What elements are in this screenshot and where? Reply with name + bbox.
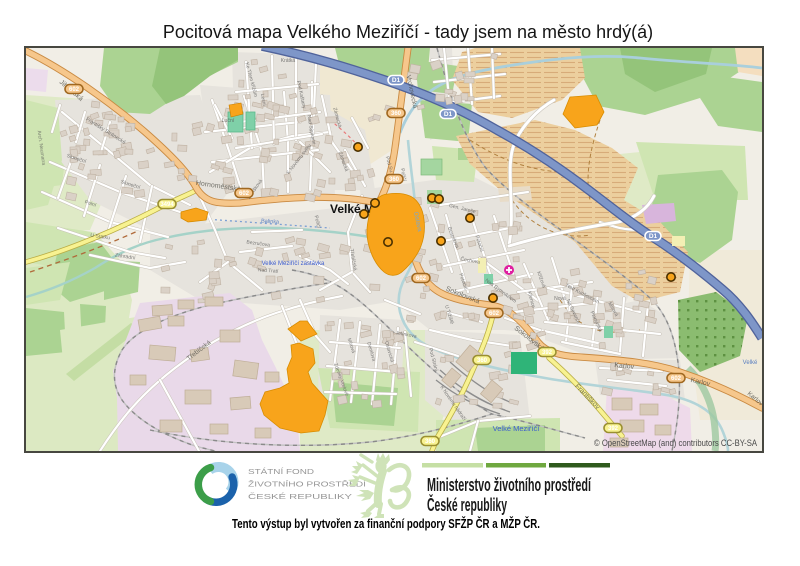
svg-text:Luční: Luční bbox=[222, 118, 235, 124]
svg-text:STÁTNÍ FOND: STÁTNÍ FOND bbox=[248, 467, 315, 476]
svg-text:ŽIVOTNÍHO PROSTŘEDÍ: ŽIVOTNÍHO PROSTŘEDÍ bbox=[248, 480, 367, 489]
svg-text:© OpenStreetMap (and) contribu: © OpenStreetMap (and) contributors CC-BY… bbox=[594, 438, 757, 448]
svg-text:602: 602 bbox=[416, 276, 427, 282]
svg-text:D1: D1 bbox=[444, 111, 453, 118]
svg-text:D1: D1 bbox=[649, 233, 658, 240]
svg-text:392: 392 bbox=[608, 426, 619, 432]
svg-text:360: 360 bbox=[391, 111, 402, 117]
svg-text:360: 360 bbox=[389, 177, 400, 183]
svg-text:Tento výstup byl vytvořen za f: Tento výstup byl vytvořen za finanční po… bbox=[232, 516, 540, 531]
svg-text:602: 602 bbox=[239, 191, 250, 197]
svg-text:České republiky: České republiky bbox=[427, 494, 507, 515]
svg-text:Ministerstvo životního prostře: Ministerstvo životního prostředí bbox=[427, 475, 592, 495]
svg-text:Nová: Nová bbox=[554, 296, 566, 302]
svg-text:360: 360 bbox=[425, 439, 436, 445]
svg-text:602: 602 bbox=[69, 87, 80, 93]
svg-text:ČESKÉ REPUBLIKY: ČESKÉ REPUBLIKY bbox=[248, 492, 352, 501]
svg-text:Velké: Velké bbox=[743, 360, 758, 366]
svg-text:Krátká: Krátká bbox=[281, 58, 296, 64]
svg-text:602: 602 bbox=[489, 311, 500, 317]
svg-text:Velké Meziříčí zastávka: Velké Meziříčí zastávka bbox=[262, 261, 325, 267]
svg-text:Velké Meziříčí: Velké Meziříčí bbox=[493, 424, 541, 433]
svg-text:602: 602 bbox=[671, 376, 682, 382]
svg-text:3494: 3494 bbox=[160, 202, 174, 208]
svg-text:360: 360 bbox=[477, 358, 488, 364]
svg-text:392: 392 bbox=[542, 350, 553, 356]
svg-text:D1: D1 bbox=[392, 77, 401, 84]
